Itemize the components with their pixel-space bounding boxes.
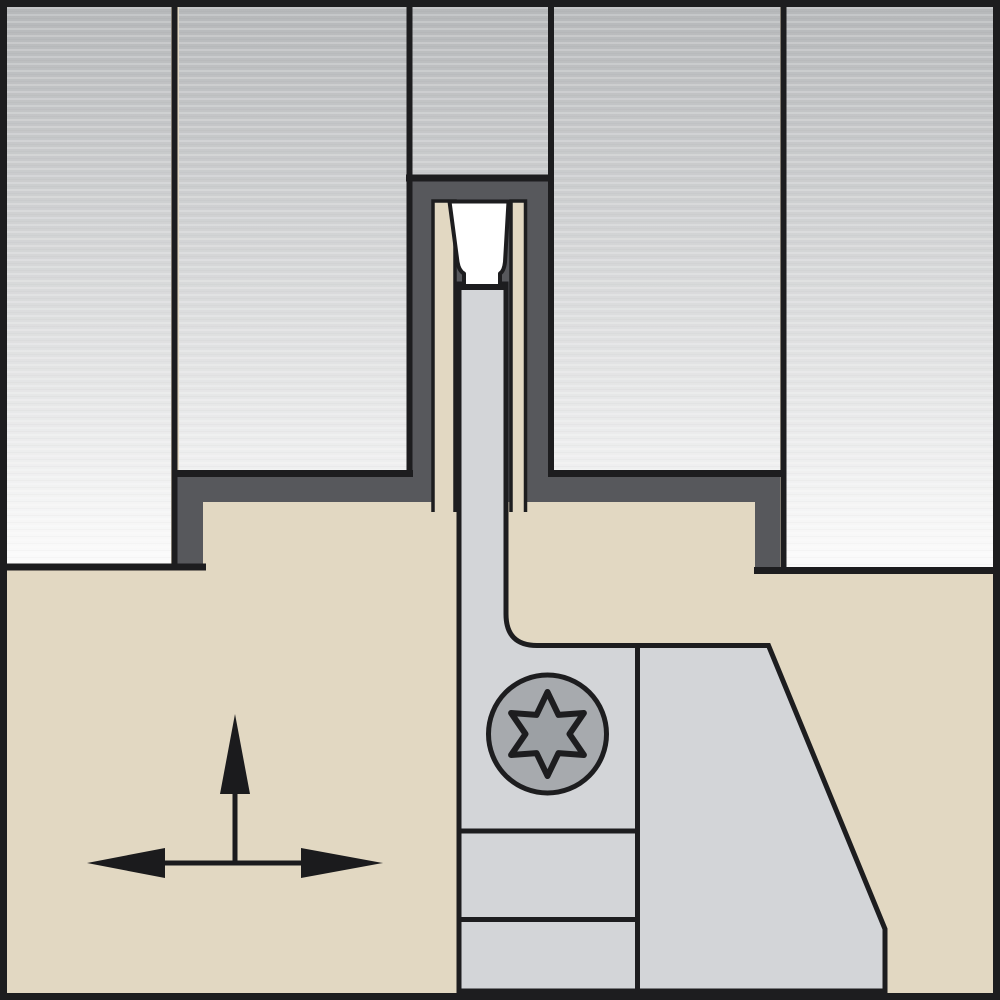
texture-overlay	[179, 6, 408, 472]
texture-overlay	[786, 6, 994, 567]
holder-column-left	[433, 201, 455, 512]
texture-overlay	[6, 6, 171, 565]
torx-screw-icon	[489, 675, 607, 793]
diagram-canvas	[0, 0, 1000, 1000]
texture-overlay	[553, 6, 780, 472]
holder-column-right	[511, 201, 526, 512]
toolholder-diagram	[0, 0, 1000, 1000]
texture-overlay	[412, 6, 548, 176]
